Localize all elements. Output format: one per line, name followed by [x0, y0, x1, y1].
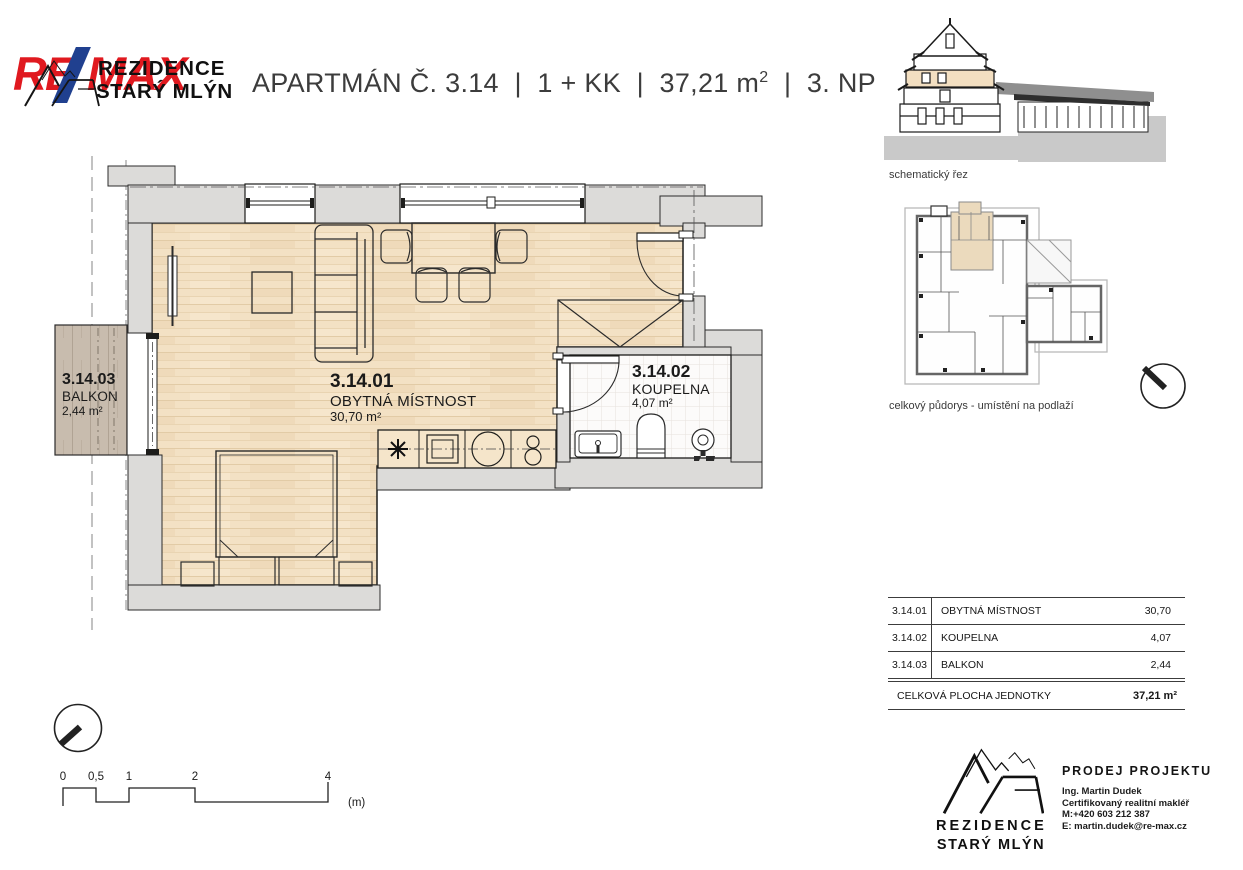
contact-role: Certifikovaný realitní makléř	[1062, 798, 1189, 810]
title-pre: APARTMÁN Č. 3.14 | 1 + KK | 37,21 m	[252, 68, 759, 98]
mountains-logo-icon	[938, 742, 1044, 816]
bathroom-sink	[575, 431, 621, 457]
balcony-name: BALKON	[62, 389, 118, 405]
scale-tick: 4	[325, 771, 332, 783]
page-title: APARTMÁN Č. 3.14 | 1 + KK | 37,21 m2 | 3…	[252, 68, 876, 99]
scale-tick: 2	[192, 771, 198, 783]
living-room-code: 3.14.01	[330, 371, 476, 393]
bathroom-code: 3.14.02	[632, 361, 710, 381]
roof-diagonal	[1027, 240, 1071, 283]
floorplan-sheet: RE MAX REZIDENCE STARÝ MLÝN APARTMÁN Č. …	[0, 0, 1243, 870]
brand-line2: STARÝ MLÝN	[96, 82, 233, 103]
scale-tick: 0	[60, 771, 66, 783]
balcony-door	[146, 333, 159, 455]
kitchen-counter	[378, 430, 556, 468]
balcony-label: 3.14.03 BALKON 2,44 m²	[62, 371, 118, 419]
contact-name: Ing. Martin Dudek	[1062, 786, 1189, 798]
overall-floorplan-caption: celkový půdorys - umístění na podlaží	[889, 400, 1074, 412]
row-value: 30,70	[1123, 605, 1185, 617]
title-sup: 2	[759, 69, 768, 86]
contact-email: E: martin.dudek@re-max.cz	[1062, 821, 1189, 833]
row-name: BALKON	[932, 659, 1123, 671]
scale-tick: 0,5	[88, 771, 104, 783]
table-total-row: CELKOVÁ PLOCHA JEDNOTKY 37,21 m²	[888, 681, 1185, 710]
footer-brand-line2: STARÝ MLÝN	[936, 837, 1046, 853]
living-room-name: OBYTNÁ MÍSTNOST	[330, 393, 476, 410]
area-table: 3.14.01 OBYTNÁ MÍSTNOST 30,70 3.14.02 KO…	[888, 597, 1185, 710]
roof-window-right	[400, 184, 585, 223]
living-room-area: 30,70 m²	[330, 410, 476, 425]
brand-line1: REZIDENCE	[98, 59, 225, 80]
row-value: 4,07	[1123, 632, 1185, 644]
living-room-label: 3.14.01 OBYTNÁ MÍSTNOST 30,70 m²	[330, 371, 476, 425]
contact-heading: PRODEJ PROJEKTU	[1062, 764, 1212, 778]
scale-unit: (m)	[348, 797, 365, 809]
balcony-area: 2,44 m²	[62, 405, 118, 419]
contact-block: Ing. Martin Dudek Certifikovaný realitní…	[1062, 786, 1189, 832]
scale-tick: 1	[126, 771, 132, 783]
row-code: 3.14.01	[888, 598, 932, 624]
total-value: 37,21 m²	[1095, 690, 1185, 702]
bathroom-name: KOUPELNA	[632, 381, 710, 397]
table-row: 3.14.03 BALKON 2,44	[888, 652, 1185, 679]
title-post: | 3. NP	[768, 68, 876, 98]
bathroom-label: 3.14.02 KOUPELNA 4,07 m²	[632, 361, 710, 411]
building-section-drawing	[878, 16, 1170, 170]
balcony-code: 3.14.03	[62, 371, 118, 389]
kitchen-asterisk-icon	[388, 439, 408, 459]
roof-window-left	[245, 184, 315, 223]
tv-unit	[168, 246, 177, 326]
table-row: 3.14.01 OBYTNÁ MÍSTNOST 30,70	[888, 597, 1185, 625]
row-code: 3.14.03	[888, 652, 932, 678]
bathroom-area: 4,07 m²	[632, 397, 710, 411]
row-code: 3.14.02	[888, 625, 932, 651]
row-name: OBYTNÁ MÍSTNOST	[932, 605, 1123, 617]
highlighted-unit	[951, 202, 993, 270]
total-label: CELKOVÁ PLOCHA JEDNOTKY	[888, 690, 1095, 702]
row-name: KOUPELNA	[932, 632, 1123, 644]
north-compass-icon	[1141, 364, 1185, 408]
row-value: 2,44	[1123, 659, 1185, 671]
contact-phone: M:+420 603 212 387	[1062, 809, 1189, 821]
section-caption: schematický řez	[889, 169, 968, 181]
mountains-logo-icon	[22, 56, 107, 108]
footer-brand-line1: REZIDENCE	[936, 818, 1046, 834]
scale-bar: 0 0,5 1 2 4 (m)	[55, 768, 375, 816]
north-compass-icon	[48, 698, 110, 760]
shower-column	[637, 414, 665, 458]
overall-floorplan-drawing	[885, 196, 1190, 414]
table-row: 3.14.02 KOUPELNA 4,07	[888, 625, 1185, 652]
